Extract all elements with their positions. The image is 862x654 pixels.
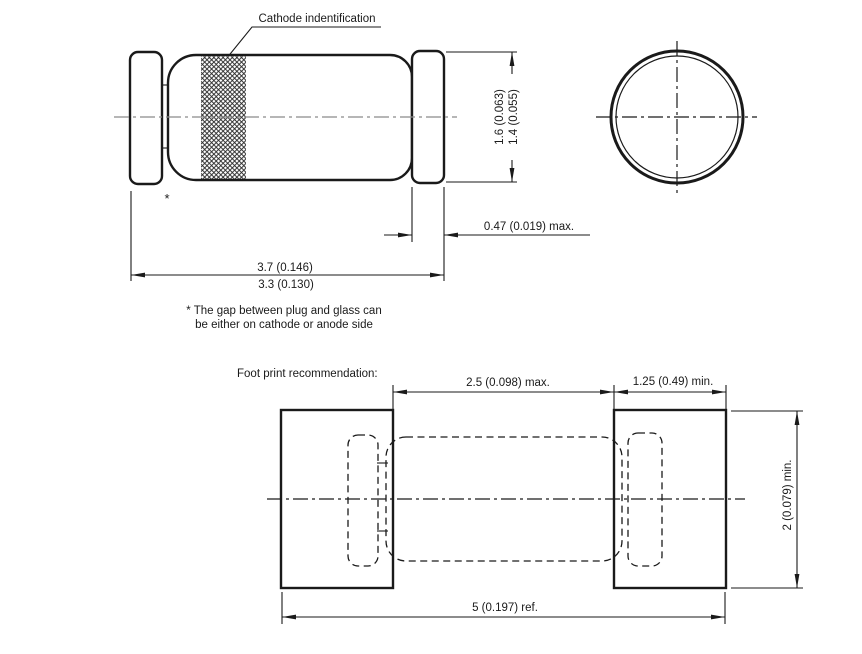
cathode-band-hatch [201,57,246,180]
diameter-min-label: 1.4 (0.055) [508,89,520,145]
pad-width-dimension: 1.25 (0.49) min. [614,376,726,410]
length-max-label: 3.7 (0.146) [257,262,313,274]
gap-note: * The gap between plug and glass can be … [186,305,381,331]
gap-asterisk-marker: * [164,191,169,206]
cap-length-label: 0.47 (0.019) max. [484,221,574,233]
note-line-2: be either on cathode or anode side [195,319,373,331]
footprint-view: Foot print recommendation: 2.5 (0.098) m… [237,368,803,624]
footprint-overall-dimension: 5 (0.197) ref. [282,592,725,624]
side-view: Cathode indentification * 1.6 (0.063) 1.… [114,13,590,291]
diameter-max-label: 1.6 (0.063) [494,89,506,145]
overall-length-dimension: 3.7 (0.146) 3.3 (0.130) [131,191,444,291]
note-line-1: * The gap between plug and glass can [186,305,381,317]
end-view [596,41,757,193]
pad-height-label: 2 (0.079) min. [782,460,794,531]
package-dimension-drawing: Cathode indentification * 1.6 (0.063) 1.… [0,0,862,654]
left-end-cap [130,52,162,184]
diameter-dimension: 1.6 (0.063) 1.4 (0.055) [446,52,523,182]
cap-length-dimension: 0.47 (0.019) max. [384,187,590,281]
cathode-callout-label: Cathode indentification [259,13,376,25]
footprint-title: Foot print recommendation: [237,368,378,380]
datasheet-drawing-page: Cathode indentification * 1.6 (0.063) 1.… [0,0,862,654]
pad-width-label: 1.25 (0.49) min. [633,376,714,388]
pad-gap-label: 2.5 (0.098) max. [466,377,550,389]
pad-gap-dimension: 2.5 (0.098) max. [393,377,614,410]
length-min-label: 3.3 (0.130) [258,279,314,291]
footprint-overall-label: 5 (0.197) ref. [472,602,538,614]
